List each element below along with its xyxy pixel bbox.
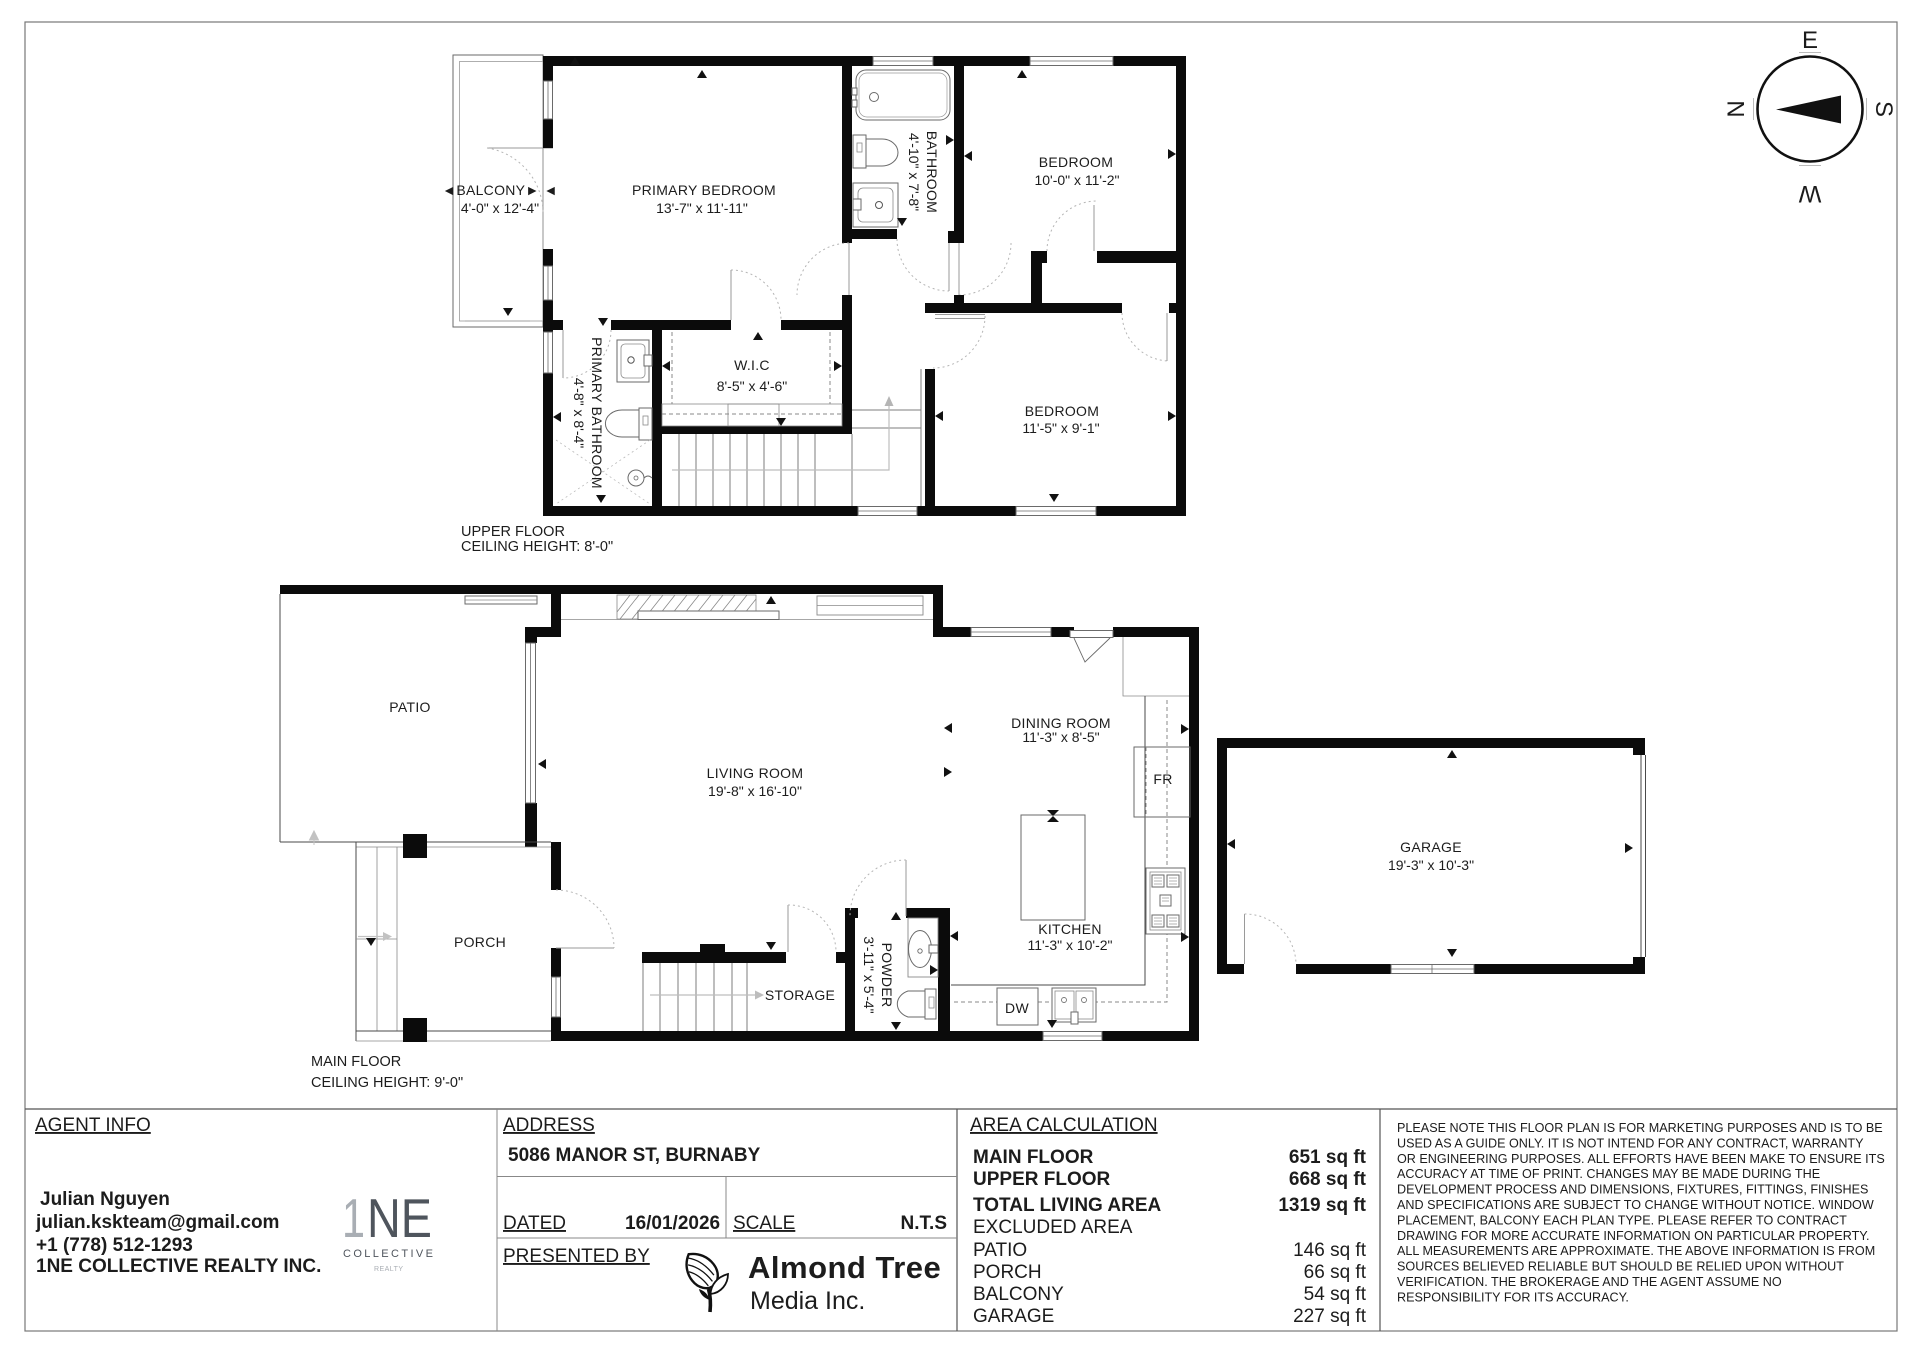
svg-text:BATHROOM: BATHROOM	[924, 131, 940, 213]
svg-text:UPPER FLOOR: UPPER FLOOR	[973, 1169, 1111, 1190]
svg-text:LIVING ROOM: LIVING ROOM	[707, 765, 804, 781]
svg-text:4'-10" x 7'-8": 4'-10" x 7'-8"	[906, 133, 922, 211]
svg-text:PLACEMENT, BALCONY EACH PLAN T: PLACEMENT, BALCONY EACH PLAN TYPE. PLEAS…	[1397, 1213, 1847, 1227]
svg-text:BALCONY: BALCONY	[973, 1284, 1064, 1305]
svg-text:CEILING HEIGHT: 8'-0": CEILING HEIGHT: 8'-0"	[461, 539, 613, 555]
svg-text:USED AS A GUIDE ONLY. IT IS NO: USED AS A GUIDE ONLY. IT IS NOT INTEND F…	[1397, 1136, 1864, 1150]
svg-text:227 sq ft: 227 sq ft	[1293, 1306, 1367, 1327]
svg-text:ADDRESS: ADDRESS	[503, 1115, 595, 1136]
svg-text:8'-5" x 4'-6": 8'-5" x 4'-6"	[717, 378, 788, 394]
svg-text:EXCLUDED AREA: EXCLUDED AREA	[973, 1217, 1133, 1238]
svg-text:1: 1	[342, 1187, 365, 1249]
svg-text:W.I.C: W.I.C	[734, 357, 770, 373]
svg-text:BEDROOM: BEDROOM	[1025, 403, 1099, 419]
svg-text:AGENT INFO: AGENT INFO	[35, 1115, 151, 1136]
svg-text:BEDROOM: BEDROOM	[1039, 154, 1113, 170]
svg-text:RESPONSIBILITY FOR ITS ACCURAC: RESPONSIBILITY FOR ITS ACCURACY.	[1397, 1290, 1629, 1304]
svg-text:146 sq ft: 146 sq ft	[1293, 1240, 1367, 1261]
svg-text:N: N	[1723, 100, 1750, 117]
svg-text:Media Inc.: Media Inc.	[750, 1287, 865, 1315]
svg-text:PRIMARY BEDROOM: PRIMARY BEDROOM	[632, 182, 776, 198]
svg-text:PLEASE NOTE THIS FLOOR PLAN IS: PLEASE NOTE THIS FLOOR PLAN IS FOR MARKE…	[1397, 1121, 1883, 1135]
svg-text:REALTY: REALTY	[374, 1266, 403, 1273]
svg-text:11'-3" x 10'-2": 11'-3" x 10'-2"	[1027, 937, 1112, 953]
svg-text:N.T.S: N.T.S	[901, 1213, 947, 1234]
svg-text:13'-7" x 11'-11": 13'-7" x 11'-11"	[656, 200, 748, 216]
svg-text:AND SPECIFICATIONS ARE SUBJECT: AND SPECIFICATIONS ARE SUBJECT TO CHANGE…	[1397, 1198, 1874, 1212]
svg-text:19'-3" x 10'-3": 19'-3" x 10'-3"	[1388, 857, 1474, 873]
svg-text:11'-5" x 9'-1": 11'-5" x 9'-1"	[1022, 420, 1099, 436]
svg-text:16/01/2026: 16/01/2026	[625, 1213, 720, 1234]
svg-text:VERIFICATION. THE BROKERAGE AN: VERIFICATION. THE BROKERAGE AND THE AGEN…	[1397, 1275, 1782, 1289]
svg-text:PRESENTED BY: PRESENTED BY	[503, 1246, 650, 1267]
svg-text:1319 sq ft: 1319 sq ft	[1278, 1195, 1366, 1216]
svg-text:10'-0" x 11'-2": 10'-0" x 11'-2"	[1034, 172, 1119, 188]
svg-text:S: S	[1870, 101, 1897, 117]
svg-text:1NE COLLECTIVE REALTY INC.: 1NE COLLECTIVE REALTY INC.	[36, 1256, 321, 1277]
svg-text:ACCURACY AT TIME OF PRINT. CHA: ACCURACY AT TIME OF PRINT. CHANGES MAY B…	[1397, 1167, 1820, 1181]
svg-text:3'-11" x 5'-4": 3'-11" x 5'-4"	[861, 936, 877, 1013]
svg-text:PORCH: PORCH	[454, 934, 506, 950]
svg-text:PORCH: PORCH	[973, 1262, 1042, 1283]
svg-text:FR: FR	[1153, 771, 1172, 787]
svg-text:SCALE: SCALE	[733, 1213, 795, 1234]
svg-text:DRAWING FOR MORE ACCURATE INFO: DRAWING FOR MORE ACCURATE INFORMATION ON…	[1397, 1229, 1870, 1243]
svg-text:STORAGE: STORAGE	[765, 987, 835, 1003]
svg-text:+1 (778) 512-1293: +1 (778) 512-1293	[36, 1235, 193, 1256]
svg-text:MAIN FLOOR: MAIN FLOOR	[311, 1054, 401, 1070]
svg-text:MAIN FLOOR: MAIN FLOOR	[973, 1147, 1094, 1168]
svg-text:AREA CALCULATION: AREA CALCULATION	[970, 1115, 1158, 1136]
svg-text:651 sq ft: 651 sq ft	[1289, 1147, 1367, 1168]
svg-text:W: W	[1798, 180, 1821, 207]
svg-text:POWDER: POWDER	[879, 943, 895, 1008]
svg-text:PRIMARY BATHROOM: PRIMARY BATHROOM	[589, 337, 605, 489]
svg-text:DW: DW	[1005, 1000, 1029, 1016]
svg-text:5086 MANOR ST, BURNABY: 5086 MANOR ST, BURNABY	[508, 1145, 761, 1166]
svg-text:66 sq ft: 66 sq ft	[1304, 1262, 1367, 1283]
svg-text:NE: NE	[367, 1187, 432, 1249]
svg-text:54 sq ft: 54 sq ft	[1304, 1284, 1367, 1305]
svg-text:4'-0" x 12'-4": 4'-0" x 12'-4"	[461, 200, 539, 216]
svg-text:Julian Nguyen: Julian Nguyen	[40, 1189, 170, 1210]
svg-text:KITCHEN: KITCHEN	[1038, 921, 1102, 937]
svg-text:PATIO: PATIO	[973, 1240, 1027, 1261]
svg-text:Almond Tree: Almond Tree	[748, 1250, 941, 1285]
svg-text:19'-8" x 16'-10": 19'-8" x 16'-10"	[708, 783, 802, 799]
svg-text:11'-3" x 8'-5": 11'-3" x 8'-5"	[1022, 729, 1099, 745]
svg-text:GARAGE: GARAGE	[1400, 839, 1462, 855]
svg-text:DATED: DATED	[503, 1213, 566, 1234]
svg-text:E: E	[1802, 27, 1818, 54]
svg-text:UPPER FLOOR: UPPER FLOOR	[461, 524, 565, 540]
svg-text:668 sq ft: 668 sq ft	[1289, 1169, 1367, 1190]
svg-text:4'-8" x 8'-4": 4'-8" x 8'-4"	[571, 378, 587, 449]
svg-text:PATIO: PATIO	[389, 699, 430, 715]
svg-text:COLLECTIVE: COLLECTIVE	[343, 1248, 433, 1260]
svg-text:julian.kskteam@gmail.com: julian.kskteam@gmail.com	[35, 1212, 279, 1233]
svg-text:CEILING HEIGHT: 9'-0": CEILING HEIGHT: 9'-0"	[311, 1075, 463, 1091]
svg-text:GARAGE: GARAGE	[973, 1306, 1054, 1327]
svg-text:TOTAL LIVING AREA: TOTAL LIVING AREA	[973, 1195, 1162, 1216]
svg-text:ALL MEASUREMENTS ARE APPROXIMA: ALL MEASUREMENTS ARE APPROXIMATE. THE AB…	[1397, 1244, 1875, 1258]
svg-text:SOURCES BELIEVED RELIABLE BUT: SOURCES BELIEVED RELIABLE BUT SHOULD BE …	[1397, 1260, 1844, 1274]
svg-text:OR ENGINEERING PURPOSES. ALL E: OR ENGINEERING PURPOSES. ALL EFFORTS HAV…	[1397, 1152, 1885, 1166]
svg-text:◄BALCONY► ◄: ◄BALCONY► ◄	[442, 182, 558, 198]
svg-text:DEVELOPMENT PROCESS AND DIMENS: DEVELOPMENT PROCESS AND DIMENSIONS, FIXT…	[1397, 1183, 1868, 1197]
